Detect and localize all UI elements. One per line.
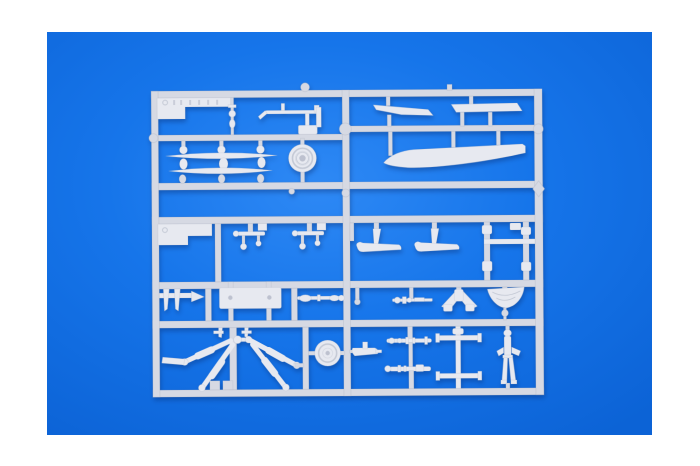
node-right-mid — [533, 124, 543, 134]
runner-row1-mid-right — [342, 125, 542, 132]
knob-top — [301, 83, 310, 92]
node-center-gap — [342, 189, 350, 197]
node-left-mid — [149, 134, 158, 143]
runner-row1-mid-left — [151, 134, 349, 141]
sprue-product-photo — [0, 0, 700, 466]
runner-row3-divider-b — [291, 288, 297, 320]
knob-gap — [289, 188, 295, 194]
photo-canvas — [0, 0, 700, 466]
runner-row3-divider-a — [205, 289, 211, 321]
runner-row2-divider — [215, 224, 221, 282]
stub-top — [447, 84, 452, 90]
node-center-mid — [339, 123, 351, 135]
part-stabilizer-blades — [165, 140, 277, 183]
runner-right-edge — [534, 89, 544, 395]
runner-row4-divider — [303, 327, 309, 389]
